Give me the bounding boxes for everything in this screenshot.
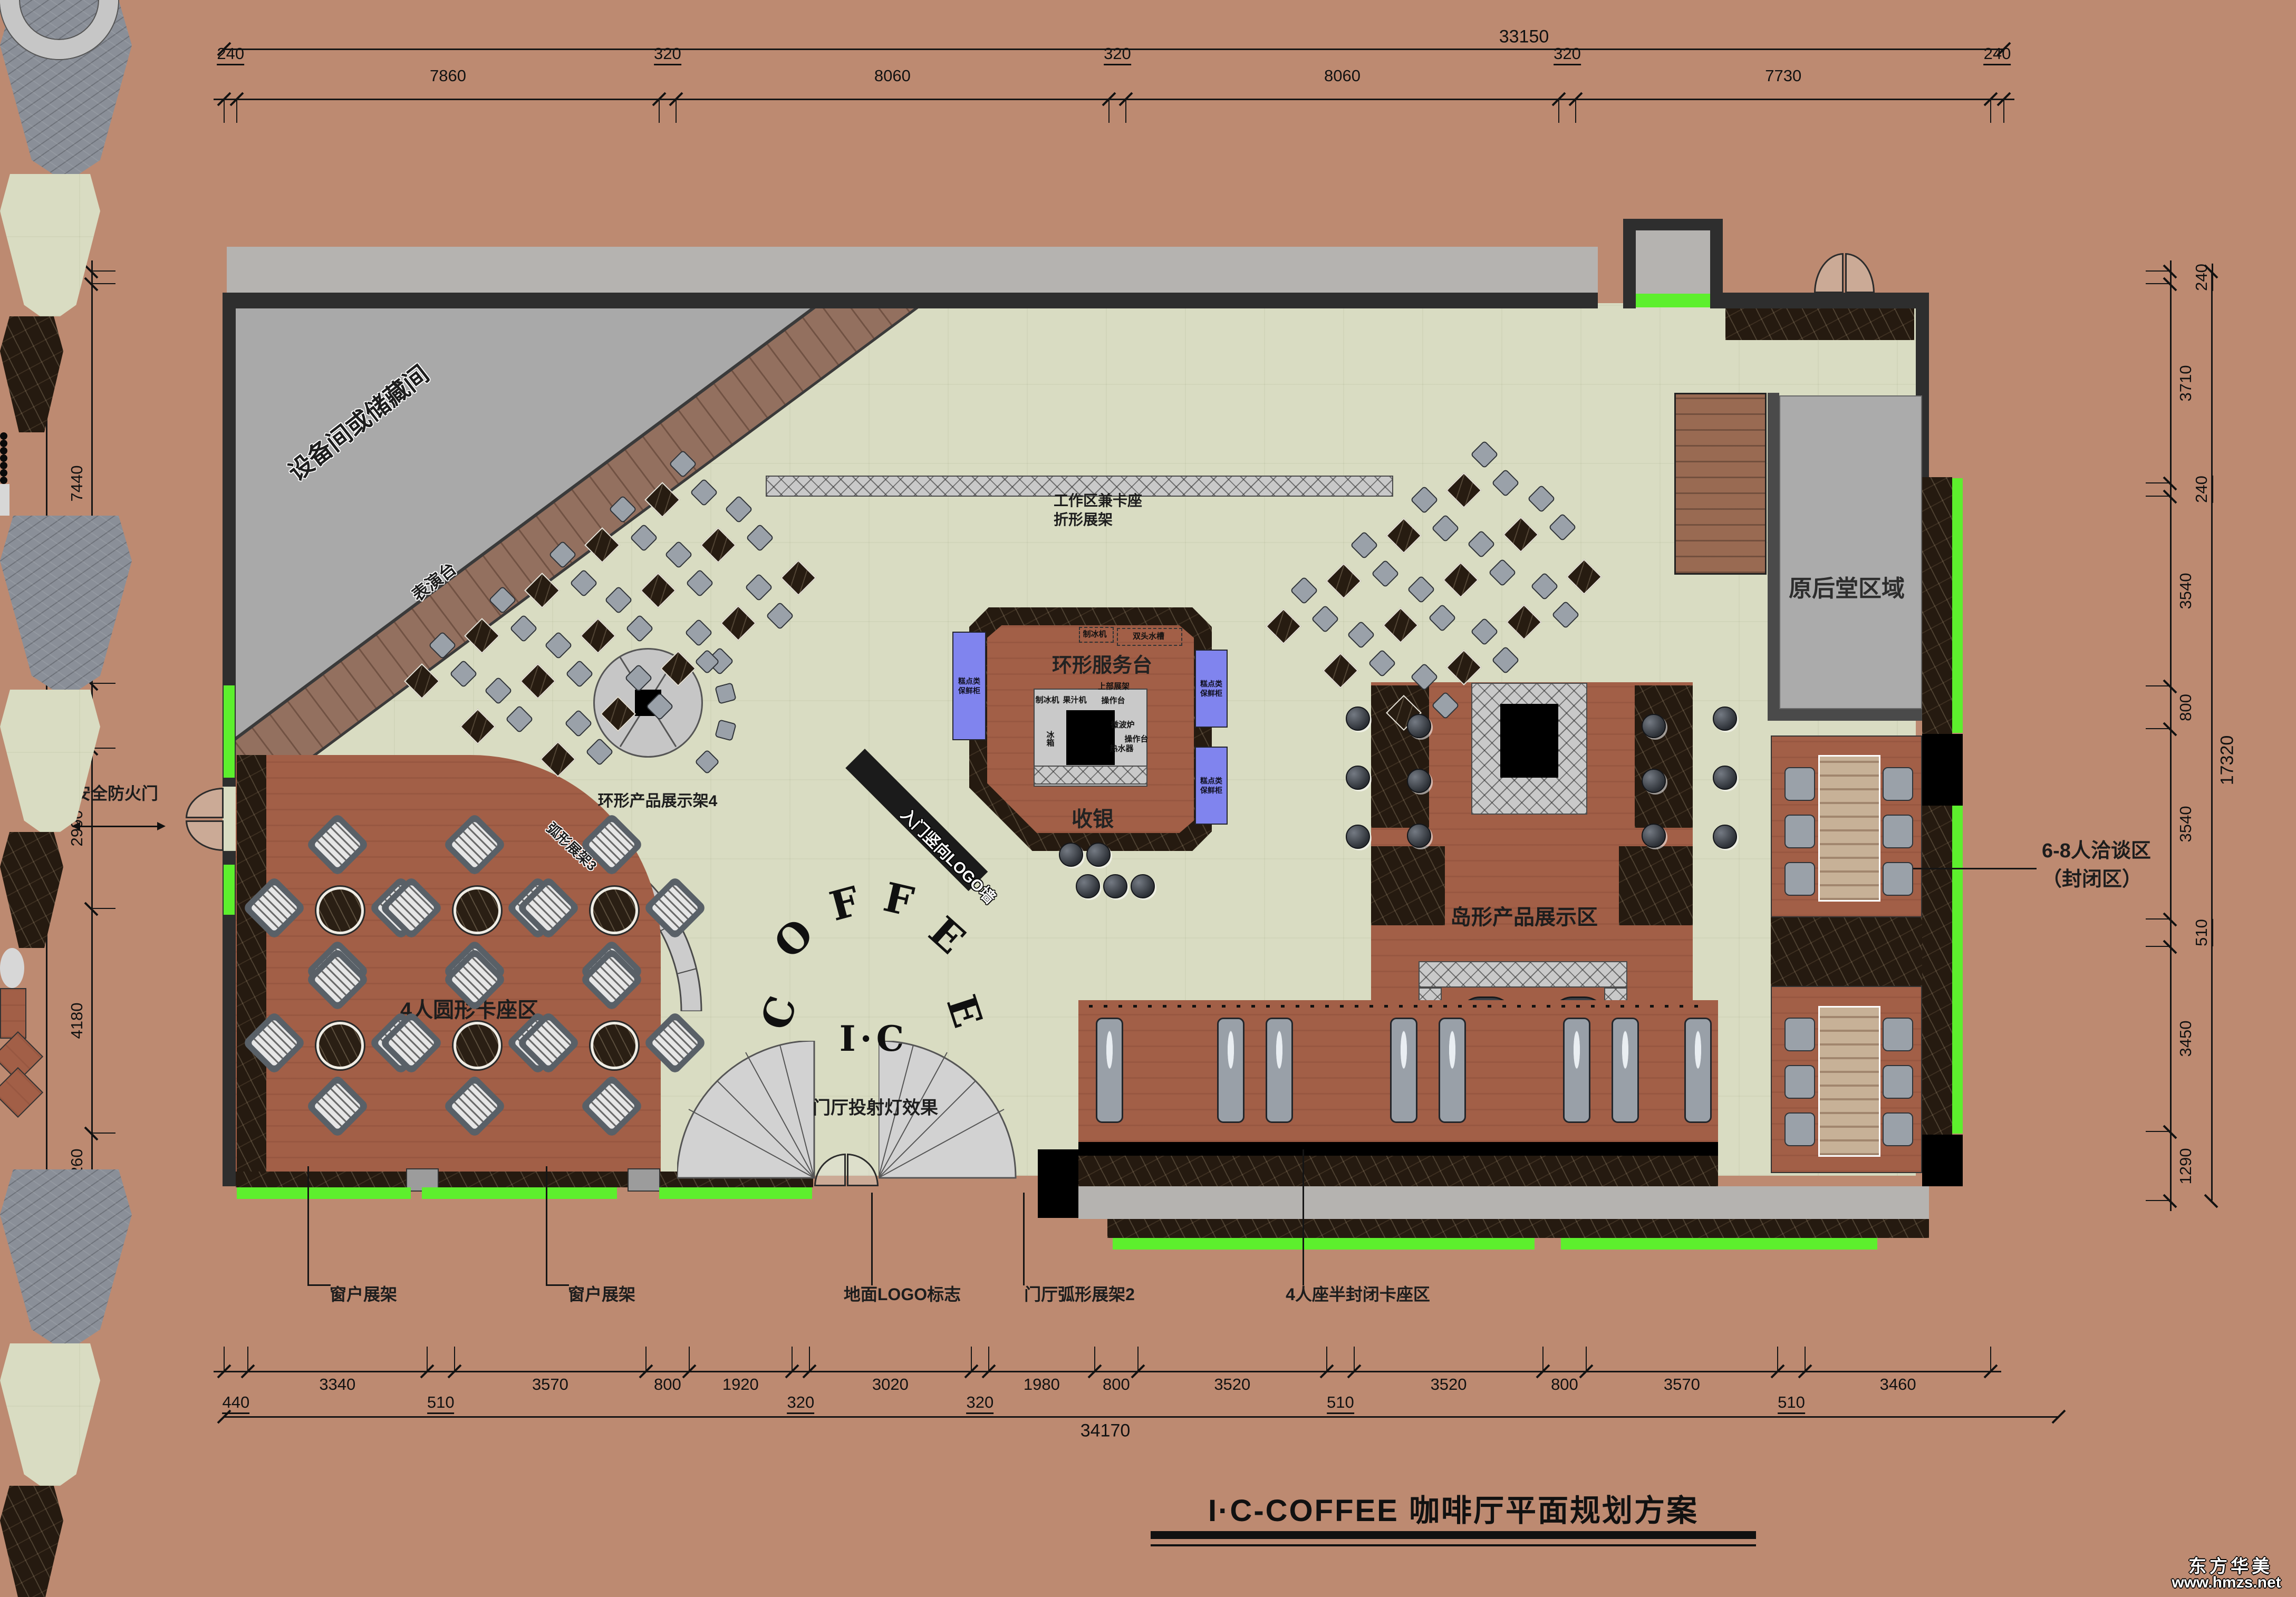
dim-ext [1990, 99, 1991, 123]
floor-logo-letter: F [880, 874, 918, 926]
dim-total-line [2211, 271, 2213, 1201]
spot-light [0, 432, 7, 440]
equipment-label: 热水器 [1110, 743, 1133, 754]
dim-ext [809, 1347, 810, 1371]
diagonal-chair [766, 602, 794, 630]
dim-ext [91, 1133, 115, 1134]
meeting-chair [1883, 815, 1913, 848]
round-table [454, 1022, 501, 1069]
diagonal-table [520, 663, 556, 699]
stool [1103, 874, 1127, 898]
dim-line [214, 99, 2014, 100]
meeting-chair [1784, 1065, 1815, 1099]
booth-sofa [1096, 1018, 1123, 1123]
generated-layer: 2407860320806032080603207730240331504403… [0, 0, 2296, 1597]
booth-armchair [305, 1074, 370, 1138]
diagonal-chair [428, 631, 457, 660]
diagonal-table [404, 663, 440, 699]
stool [1076, 874, 1100, 898]
dim-label: 240 [217, 44, 244, 65]
dim-label: 320 [654, 44, 681, 65]
diagonal-chair [1527, 485, 1556, 513]
diagonal-chair [1350, 531, 1378, 559]
dim-label: 3520 [1214, 1375, 1250, 1394]
booth-armchair [442, 947, 507, 1012]
booth-armchair [516, 876, 581, 940]
dim-ext [427, 1347, 428, 1371]
booth-armchair [442, 1074, 507, 1138]
diagonal-chair [1371, 559, 1400, 588]
diagonal-chair [1290, 576, 1318, 605]
niche-floor [0, 1343, 100, 1486]
equipment-label: 操作台 [1101, 695, 1125, 706]
diagonal-chair [664, 540, 693, 569]
diagonal-table [1323, 653, 1358, 689]
diagonal-chair [1368, 649, 1396, 677]
spot-light [0, 477, 7, 484]
island-stool [1346, 706, 1370, 731]
dim-ext [645, 1347, 647, 1371]
diagonal-chair [449, 660, 478, 688]
diagonal-chair [1491, 469, 1520, 497]
dim-ext [247, 1347, 248, 1371]
booth-armchair [305, 947, 370, 1012]
dim-label: 7440 [67, 466, 86, 502]
diagonal-chair [1470, 617, 1499, 646]
dim-label: 510 [1327, 1393, 1354, 1414]
dim-ext [1137, 1347, 1139, 1371]
booth-sofa [1266, 1018, 1293, 1123]
meeting-chair [1784, 1112, 1815, 1146]
booth-armchair [242, 876, 306, 940]
diagonal-chair [1410, 663, 1439, 691]
diagonal-chair [630, 524, 658, 552]
booth-armchair [379, 1011, 443, 1075]
dim-label: 3710 [2176, 365, 2195, 402]
booth-sofa [1684, 1018, 1712, 1123]
booth-sofa [1563, 1018, 1590, 1123]
diagonal-chair [745, 573, 773, 602]
island-stool [1407, 714, 1431, 738]
dim-ext [224, 1347, 225, 1371]
diagonal-chair [725, 495, 753, 524]
diagonal-chair [505, 705, 534, 733]
diagonal-table [1446, 472, 1482, 508]
island-stool [1407, 824, 1431, 848]
diagonal-chair [645, 692, 674, 721]
diagonal-table [524, 573, 560, 608]
dim-ext [971, 1347, 972, 1371]
spot-light [0, 440, 7, 447]
dim-line [214, 1371, 2001, 1372]
dim-ext [1777, 1347, 1778, 1371]
meeting-chair [1784, 815, 1815, 848]
floor-logo-letter: O [765, 909, 822, 967]
booth-sofa [1217, 1018, 1245, 1123]
equipment-label: 双头水槽 [1133, 631, 1164, 642]
diagonal-chair [1488, 558, 1517, 587]
niche-pedestal [0, 988, 26, 1039]
dim-label: 320 [966, 1393, 993, 1414]
meeting-chair [1883, 862, 1913, 896]
dim-label: 3460 [1880, 1375, 1916, 1394]
meeting-chair [1784, 1018, 1815, 1051]
dim-total: 34170 [1081, 1421, 1131, 1441]
diagonal-table [464, 618, 500, 654]
dim-label: 3520 [1431, 1375, 1467, 1394]
meeting-chair [1883, 767, 1913, 801]
dim-ext [2146, 1200, 2170, 1201]
dim-ext [2146, 918, 2170, 920]
dim-ext [2146, 496, 2170, 497]
dim-label: 1920 [722, 1375, 759, 1394]
diagonal-table [584, 527, 620, 563]
diagonal-table [720, 605, 756, 641]
niche-structure [0, 1169, 132, 1343]
dim-ext [689, 1347, 690, 1371]
island-stool [1713, 825, 1737, 849]
diagonal-table [580, 618, 616, 654]
diagonal-table [1446, 650, 1482, 685]
diagonal-chair [570, 569, 598, 597]
booth-armchair [643, 1011, 707, 1075]
diagonal-chair [1410, 486, 1439, 514]
dim-ext [2146, 283, 2170, 284]
diagonal-table [660, 651, 696, 686]
dim-ext [2146, 1131, 2170, 1132]
niche-structure [0, 516, 132, 690]
niche-marble-counter [0, 1486, 63, 1597]
equipment-label: 制冰机 [1083, 628, 1106, 640]
dim-total-line [224, 49, 2004, 50]
dim-ext [91, 908, 115, 909]
diagonal-chair [1491, 646, 1520, 674]
dim-line [2170, 260, 2172, 1211]
island-stool [1713, 706, 1737, 731]
dim-label: 3570 [532, 1375, 568, 1394]
diagonal-chair [609, 495, 637, 524]
dim-label: 320 [787, 1393, 814, 1414]
diagonal-chair [1470, 440, 1499, 469]
dim-total: 33150 [1499, 27, 1549, 47]
dim-label: 320 [1554, 44, 1581, 65]
dim-ext [792, 1347, 793, 1371]
dim-ext [1354, 1347, 1355, 1371]
dim-label: 510 [1778, 1393, 1805, 1414]
dim-ext [1558, 99, 1559, 123]
island-stool [1346, 825, 1370, 849]
diagonal-chair [624, 664, 653, 692]
floor-logo-letter: F [825, 877, 864, 930]
diagonal-chair [484, 676, 513, 705]
arc-chair [715, 719, 737, 741]
dim-label: 3540 [2176, 806, 2195, 842]
dim-label: 3450 [2176, 1021, 2195, 1057]
dim-label: 3340 [319, 1375, 355, 1394]
dim-label: 800 [1103, 1375, 1130, 1394]
booth-sofa [1439, 1018, 1466, 1123]
dim-ext [91, 283, 115, 284]
dim-label: 3540 [2176, 573, 2195, 609]
dim-total: 17320 [2217, 735, 2238, 786]
round-table [591, 1022, 638, 1069]
dim-label: 7860 [430, 66, 466, 85]
diagonal-table [460, 709, 496, 744]
round-table [454, 887, 501, 934]
equipment-label: 上部展架 [1098, 681, 1130, 692]
booth-sofa [1390, 1018, 1417, 1123]
dim-ext [1805, 1347, 1806, 1371]
dim-ext [91, 748, 115, 749]
diagonal-table [1326, 563, 1362, 599]
round-table [316, 887, 364, 934]
island-stool [1642, 714, 1666, 738]
dim-ext [236, 99, 237, 123]
dim-ext [1108, 99, 1110, 123]
spot-light [0, 462, 7, 469]
floor-logo-letter: E [920, 908, 975, 963]
diagonal-table [1443, 562, 1479, 598]
diagonal-table [600, 696, 636, 732]
diagonal-table [1506, 604, 1542, 640]
island-stool [1407, 769, 1431, 793]
diagonal-chair [1551, 601, 1580, 629]
dim-label: 240 [2192, 264, 2213, 291]
dim-label: 800 [2176, 694, 2195, 721]
equipment-label: 制冰机 [1035, 694, 1059, 705]
diagonal-table [644, 482, 680, 518]
diagonal-chair [684, 618, 713, 647]
dim-ext [2146, 728, 2170, 729]
dim-label: 800 [654, 1375, 681, 1394]
floor-plan-canvas: 糕点类保鲜柜 糕点类保鲜柜 糕点类保鲜柜 [0, 0, 2296, 1597]
dim-label: 8060 [874, 66, 911, 85]
dim-label: 320 [1104, 44, 1131, 65]
booth-armchair [305, 812, 370, 877]
dim-ext [2003, 99, 2004, 123]
diagonal-table [1503, 517, 1539, 553]
round-table [591, 887, 638, 934]
dim-ext [1326, 1347, 1327, 1371]
booth-armchair [442, 812, 507, 877]
diagonal-chair [1347, 621, 1375, 649]
spot-light [0, 447, 7, 454]
dim-ext [1990, 1347, 1991, 1371]
floor-logo-letter: E [938, 990, 992, 1033]
equipment-label: 微波炉 [1111, 719, 1134, 730]
dim-ext [2146, 482, 2170, 483]
dim-ext [91, 270, 115, 272]
dim-label: 3570 [1664, 1375, 1700, 1394]
diagonal-chair [564, 709, 593, 738]
dim-ext [2146, 685, 2170, 686]
equipment-label: 冰箱 [1045, 731, 1056, 747]
floor-logo-center: I·C [840, 1018, 908, 1059]
dim-label: 800 [1551, 1375, 1578, 1394]
diagonal-chair [746, 524, 774, 552]
dim-ext [676, 99, 677, 123]
dim-ext [1575, 99, 1576, 123]
niche-floor [0, 174, 100, 316]
dim-label: 240 [2192, 476, 2213, 503]
diagonal-chair [548, 540, 577, 569]
diagonal-chair [1311, 605, 1339, 633]
equipment-label: 果汁机 [1063, 694, 1086, 705]
dim-label: 7730 [1765, 66, 1801, 85]
diagonal-chair [686, 569, 714, 597]
diagonal-chair [1530, 572, 1559, 601]
diagonal-chair [565, 660, 594, 688]
round-table [316, 1022, 364, 1069]
dim-ext [91, 683, 115, 684]
dim-label: 510 [2192, 919, 2213, 946]
booth-armchair [580, 812, 644, 877]
dim-label: 510 [427, 1393, 455, 1414]
dim-ext [1094, 1347, 1095, 1371]
niche-slot [0, 484, 9, 516]
booth-armchair [580, 1074, 644, 1138]
diagonal-table [700, 527, 736, 563]
diagonal-chair [1431, 691, 1460, 720]
dim-ext [2146, 270, 2170, 272]
u-shelf [0, 1110, 118, 1169]
dim-ext [1586, 1347, 1587, 1371]
stool [1131, 874, 1155, 898]
diagonal-table [1386, 518, 1422, 554]
diagonal-chair [509, 614, 538, 643]
dim-total-line [224, 1416, 2059, 1418]
spot-light [0, 454, 7, 462]
dim-ext [659, 99, 660, 123]
island-stool [1713, 766, 1737, 790]
dim-label: 1290 [2176, 1148, 2195, 1184]
island-stool [1346, 766, 1370, 790]
dim-ext [1125, 99, 1126, 123]
island-stool [1642, 824, 1666, 848]
meeting-chair [1784, 862, 1815, 896]
diagonal-chair [625, 614, 654, 643]
dim-ext [1542, 1347, 1543, 1371]
arc-chair [715, 682, 737, 704]
stool [1086, 843, 1111, 867]
diagonal-chair [1428, 604, 1456, 632]
diagonal-chair [669, 450, 697, 478]
dim-label: 3020 [872, 1375, 909, 1394]
spot-light [0, 469, 7, 477]
diagonal-chair [488, 586, 517, 614]
booth-armchair [580, 947, 644, 1012]
dim-label: 440 [223, 1393, 250, 1414]
diagonal-table [780, 560, 816, 596]
booth-armchair [516, 1011, 581, 1075]
diagonal-chair [1467, 530, 1496, 558]
diagonal-chair [585, 738, 614, 766]
diagonal-table [540, 741, 576, 777]
meeting-chair [1883, 1112, 1913, 1146]
diagonal-chair [1407, 575, 1435, 604]
stool [1059, 843, 1083, 867]
dim-label: 1980 [1024, 1375, 1060, 1394]
booth-sofa [1612, 1018, 1639, 1123]
dim-ext [224, 99, 225, 123]
booth-armchair [643, 876, 707, 940]
diagonal-table [1266, 608, 1301, 644]
diagonal-table [640, 573, 676, 608]
dim-ext [2146, 946, 2170, 947]
niche-oval-hole [0, 948, 24, 988]
diagonal-chair [604, 586, 633, 614]
booth-armchair [379, 876, 443, 940]
diagonal-chair [544, 631, 573, 660]
niche-marble-counter [0, 832, 63, 948]
diagonal-chair [1431, 514, 1460, 543]
floor-logo-letter: C [751, 990, 806, 1035]
niche-marble-counter [0, 316, 63, 432]
booth-armchair [242, 1011, 306, 1075]
island-stool [1642, 769, 1666, 793]
dim-ext [454, 1347, 455, 1371]
diagonal-table [1383, 607, 1419, 643]
diagonal-table [1566, 559, 1602, 595]
dim-label: 4180 [67, 1003, 86, 1039]
dim-ext [988, 1347, 989, 1371]
meeting-chair [1784, 767, 1815, 801]
arc-chair [694, 749, 720, 775]
diagonal-chair [1548, 513, 1577, 541]
dim-label: 8060 [1324, 66, 1361, 85]
meeting-chair [1883, 1065, 1913, 1099]
meeting-chair [1883, 1018, 1913, 1051]
diagonal-chair [690, 478, 718, 507]
